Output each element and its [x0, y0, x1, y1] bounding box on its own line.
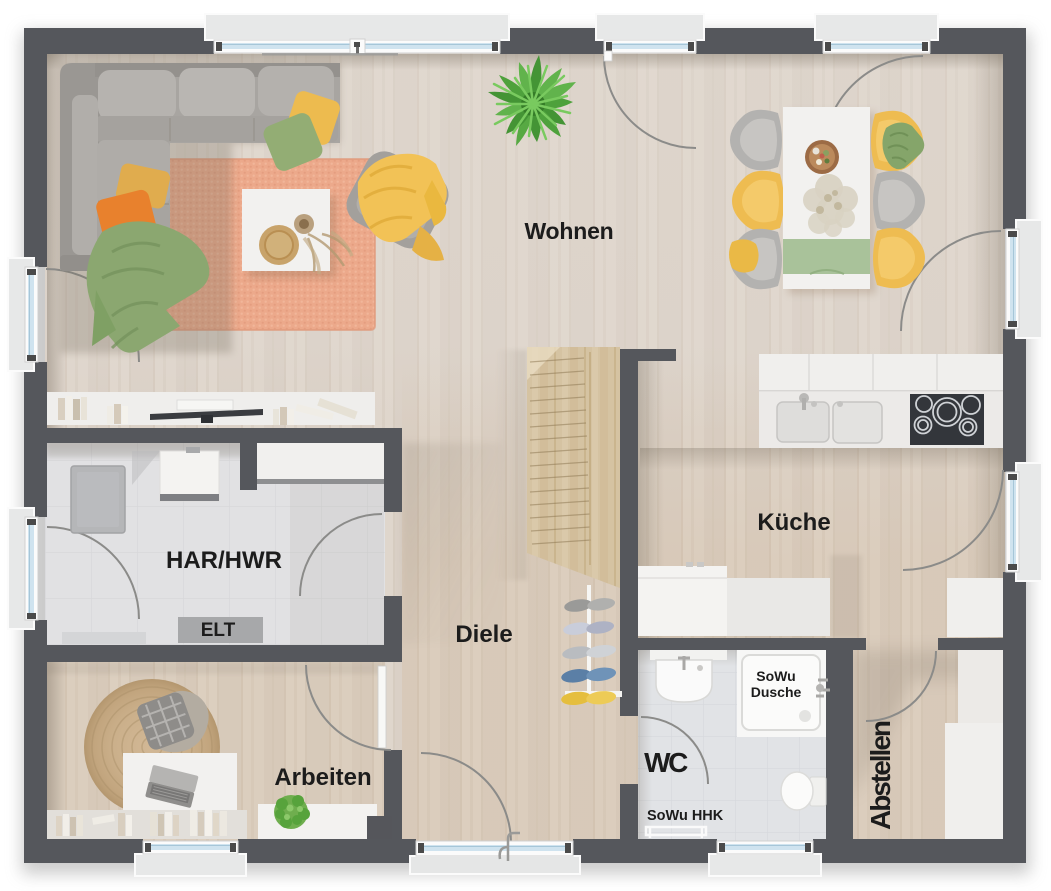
- svg-text:SoWu: SoWu: [756, 668, 795, 684]
- svg-text:HAR/HWR: HAR/HWR: [166, 547, 282, 574]
- svg-text:Wohnen: Wohnen: [524, 218, 613, 244]
- svg-text:WC: WC: [644, 747, 688, 778]
- svg-text:Küche: Küche: [757, 509, 830, 536]
- svg-text:Diele: Diele: [455, 621, 512, 648]
- svg-text:Abstellen: Abstellen: [865, 721, 896, 830]
- svg-text:Dusche: Dusche: [751, 684, 802, 700]
- svg-text:SoWu HHK: SoWu HHK: [647, 808, 724, 824]
- svg-text:ELT: ELT: [201, 620, 236, 641]
- svg-text:Arbeiten: Arbeiten: [274, 764, 371, 791]
